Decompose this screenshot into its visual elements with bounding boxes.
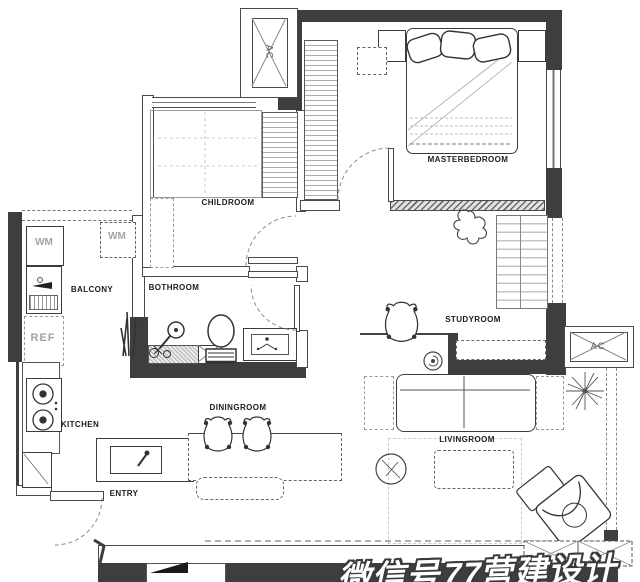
desk-childroom <box>150 198 174 268</box>
door-bathroom <box>294 285 300 332</box>
armchair-side-table <box>516 465 565 511</box>
room-label-balcony: BALCONY <box>64 285 120 294</box>
kitchen-sink <box>110 446 162 474</box>
wardrobe-master <box>304 40 338 200</box>
room-label-entry: ENTRY <box>104 489 144 498</box>
refrigerator-label: REF <box>24 332 62 344</box>
study-desk <box>456 340 546 360</box>
bath-counter-end <box>198 345 222 364</box>
dining-bench <box>196 477 284 500</box>
laundry-sink-drain <box>29 295 58 310</box>
wall-bathroom-left <box>130 317 148 362</box>
ac-right-label: AC <box>570 332 626 360</box>
door-childroom-panel-a <box>248 257 298 264</box>
room-label-childroom: CHILDROOM <box>193 198 263 207</box>
armchair <box>534 473 613 551</box>
bed-master <box>406 28 518 154</box>
room-label-masterbedroom: MASTERBEDROOM <box>408 155 528 164</box>
floor-plan: MASTERBEDROOM CHILDROOM BOTHROOM BALCONY… <box>0 0 640 582</box>
decor-squiggle <box>454 210 487 244</box>
wall-left <box>8 212 22 362</box>
wall-study-bottom <box>448 358 566 374</box>
ac-top-label: AC <box>252 18 286 86</box>
washing-machine-right-label: WM <box>100 231 134 242</box>
ceiling-box <box>357 47 387 75</box>
coffee-table <box>434 450 514 489</box>
door-childroom-panel-b <box>248 271 298 278</box>
window-masterbedroom <box>546 70 561 168</box>
wall-right-mid <box>546 168 562 218</box>
window-studyroom <box>552 218 563 303</box>
wall-hall-master <box>300 200 340 211</box>
study-chair <box>385 302 417 341</box>
wall-kitchen-left <box>16 362 19 487</box>
sofa <box>396 374 536 432</box>
window-livingroom <box>606 368 617 530</box>
window-balcony-top <box>22 210 132 221</box>
room-label-bothroom: BOTHROOM <box>146 283 202 292</box>
washing-machine-left-label: WM <box>26 237 62 248</box>
wall-top <box>288 10 560 22</box>
wall-top-right <box>546 10 562 70</box>
door-master <box>388 148 394 202</box>
bed-childroom <box>150 110 262 198</box>
room-label-livingroom: LIVINGROOM <box>428 435 506 444</box>
bath-counter <box>148 345 200 364</box>
sofa-side-table-right <box>536 376 564 430</box>
wall-bathroom-right <box>296 330 308 368</box>
door-entry <box>50 491 104 501</box>
nightstand-right <box>518 30 546 62</box>
wall-bathroom-bottom <box>130 362 306 378</box>
window-childroom <box>152 97 256 108</box>
bookshelf <box>496 215 548 309</box>
sofa-side-table-left <box>364 376 394 430</box>
wardrobe-childroom <box>262 112 298 198</box>
plant-icon <box>566 372 604 410</box>
spiral-marker <box>424 352 442 370</box>
room-label-studyroom: STUDYROOM <box>442 315 504 324</box>
dining-table <box>188 433 342 481</box>
wall-master-study <box>390 200 545 211</box>
corner-cabinet <box>22 452 52 488</box>
room-label-kitchen: KITCHEN <box>56 420 104 429</box>
room-label-diningroom: DININGROOM <box>202 403 274 412</box>
window-bottom <box>146 563 226 582</box>
bath-vanity-basin <box>251 334 289 355</box>
